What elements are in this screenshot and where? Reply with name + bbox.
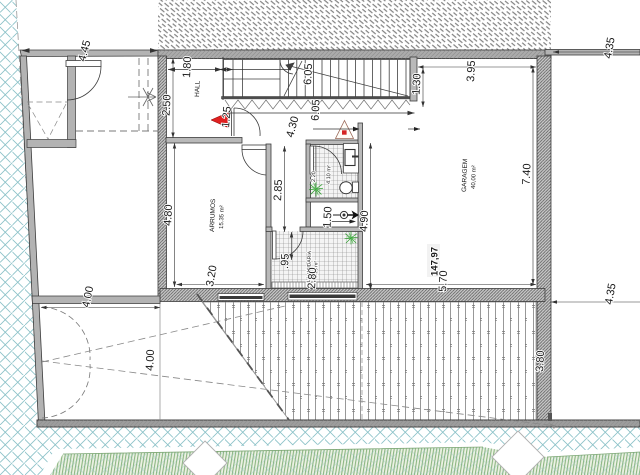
svg-text:40,00 m²: 40,00 m² — [471, 165, 478, 189]
svg-text:1.30: 1.30 — [411, 73, 424, 95]
svg-text:4.00: 4.00 — [144, 349, 157, 371]
svg-text:4.10 m²: 4.10 m² — [326, 165, 333, 184]
svg-text:6.05: 6.05 — [302, 63, 315, 85]
svg-text:6.05: 6.05 — [310, 99, 323, 121]
svg-text:7.40: 7.40 — [521, 163, 534, 185]
svg-text:ARRUMOS: ARRUMOS — [209, 198, 217, 232]
svg-text:GARAGEM: GARAGEM — [461, 159, 469, 192]
svg-text:HALL: HALL — [194, 80, 202, 97]
svg-text:1.25: 1.25 — [220, 106, 234, 128]
svg-text:2.20: 2.20 — [311, 171, 317, 182]
svg-text:1.50: 1.50 — [322, 206, 335, 228]
svg-text:.95: .95 — [279, 253, 292, 269]
svg-text:1.80: 1.80 — [181, 56, 194, 78]
svg-text:4.90: 4.90 — [358, 210, 371, 232]
svg-text:3.80: 3.80 — [534, 350, 547, 372]
svg-text:2.50: 2.50 — [161, 94, 174, 116]
svg-text:2.85: 2.85 — [272, 179, 285, 201]
svg-text:15.35 m²: 15.35 m² — [219, 205, 226, 229]
svg-text:2.80: 2.80 — [306, 267, 319, 289]
svg-text:5.70: 5.70 — [437, 270, 450, 292]
svg-text:3.95: 3.95 — [465, 60, 478, 82]
svg-text:4.80: 4.80 — [162, 204, 175, 226]
